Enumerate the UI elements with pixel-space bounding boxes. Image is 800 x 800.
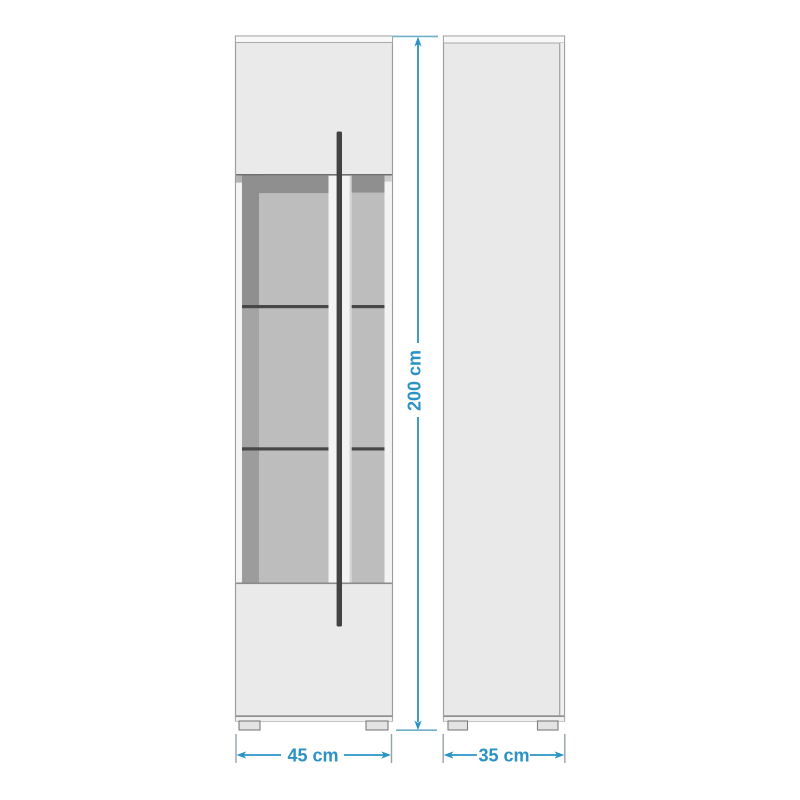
svg-text:35 cm: 35 cm bbox=[478, 746, 529, 766]
svg-text:45 cm: 45 cm bbox=[287, 746, 338, 766]
svg-text:200 cm: 200 cm bbox=[405, 350, 425, 411]
